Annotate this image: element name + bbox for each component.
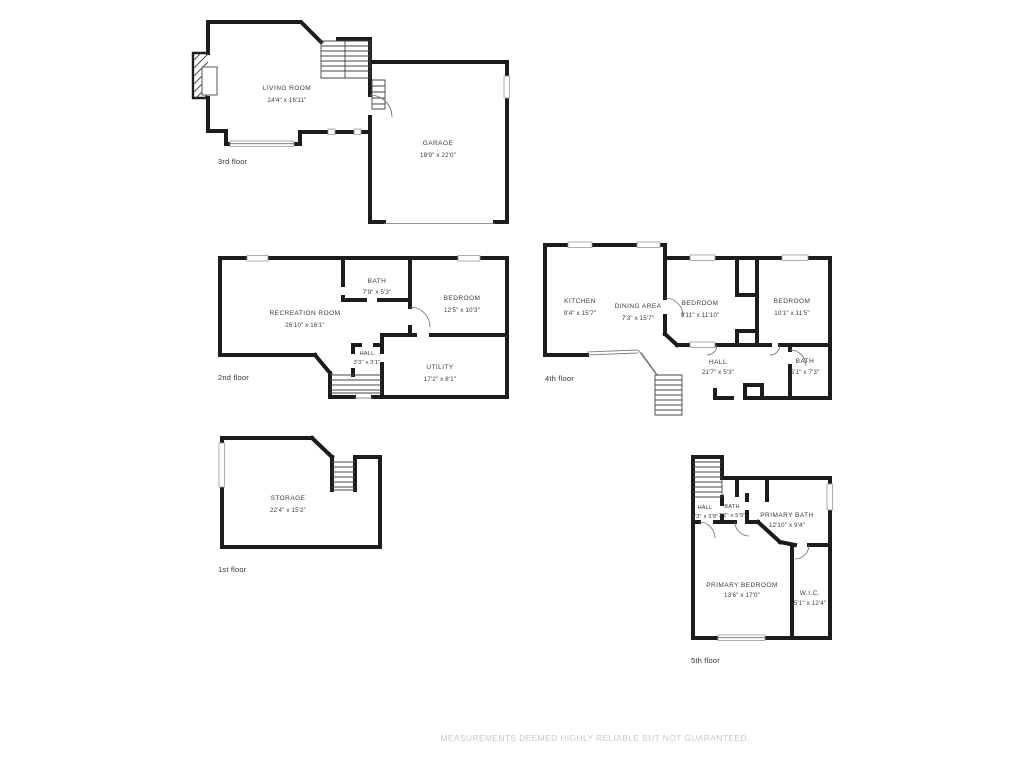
stairs [655, 375, 682, 415]
room-dims-bath: 7'9" x 5'3" [363, 289, 392, 296]
window [219, 443, 225, 487]
room-name-bedroom-left: BEDROOM [682, 300, 719, 307]
fireplace [193, 53, 217, 98]
room-dims-bath: 5'1" x 7'3" [791, 369, 820, 376]
stair-rail [587, 350, 658, 376]
room-name-kitchen: KITCHEN [564, 298, 596, 305]
stairs [330, 375, 382, 393]
garage-steps [372, 80, 385, 109]
window [690, 342, 715, 348]
window [568, 242, 592, 248]
room-name-hall: HALL [697, 505, 712, 511]
floorplan-4th-floor: KITCHEN 9'4" x 15'7" DINING AREA 7'3" x … [540, 238, 840, 418]
floor-label-5th: 5th floor [691, 656, 720, 665]
room-dims-bedroom-left: 9'11" x 11'10" [681, 312, 720, 319]
room-dims-hall: 21'7" x 5'3" [702, 369, 734, 376]
room-dims-kitchen: 9'4" x 15'7" [564, 310, 596, 317]
room-name-garage: GARAGE [423, 140, 454, 147]
room-dims-living-room: 24'4" x 16'11" [267, 97, 306, 104]
window [827, 484, 833, 510]
window [458, 256, 480, 262]
room-name-recreation-room: RECREATION ROOM [270, 310, 341, 317]
room-name-bedroom-right: BEDROOM [774, 298, 811, 305]
room-dims-hall: 9'3" x 3'8" [691, 514, 718, 520]
floorplan-5th-floor: HALL 9'3" x 3'8" BATH 7'2" x 5'9" PRIMAR… [685, 450, 850, 655]
stairs [332, 462, 355, 490]
floorplan-page: LIVING ROOM 24'4" x 16'11" GARAGE 18'9" … [0, 0, 1024, 768]
room-name-wic: W.I.C. [800, 590, 820, 597]
window [247, 256, 268, 262]
room-dims-storage: 22'4" x 15'2" [270, 507, 306, 514]
window [637, 242, 660, 248]
room-name-primary-bedroom: PRIMARY BEDROOM [706, 582, 778, 589]
window [328, 129, 335, 135]
floor-label-3rd: 3rd floor [218, 157, 247, 166]
walls [222, 438, 380, 547]
room-name-bath: BATH [724, 504, 740, 510]
room-dims-hall: 3'3" x 3'1" [353, 360, 380, 366]
room-name-bedroom: BEDROOM [444, 295, 481, 302]
room-dims-wic: 5'1" x 12'4" [794, 600, 826, 607]
measurements-disclaimer: MEASUREMENTS DEEMED HIGHLY RELIABLE BUT … [430, 733, 760, 743]
room-name-bath: BATH [368, 278, 387, 285]
walls [545, 245, 830, 398]
room-dims-bedroom: 12'5" x 10'3" [444, 307, 480, 314]
floorplan-3rd-floor: LIVING ROOM 24'4" x 16'11" GARAGE 18'9" … [188, 12, 520, 232]
window [504, 76, 510, 98]
stairs [693, 462, 722, 497]
window [354, 129, 361, 135]
room-dims-dining-area: 7'3" x 15'7" [622, 315, 654, 322]
room-dims-bedroom-right: 10'1" x 11'5" [774, 310, 809, 317]
window [782, 255, 808, 261]
floor-label-2nd: 2nd floor [218, 373, 249, 382]
walls [693, 457, 830, 638]
room-name-dining-area: DINING AREA [615, 303, 662, 310]
room-dims-garage: 18'9" x 22'0" [420, 152, 456, 159]
window [690, 255, 715, 261]
walls [220, 258, 507, 397]
door-arc [410, 307, 430, 327]
room-dims-primary-bedroom: 13'6" x 17'0" [724, 592, 760, 599]
room-name-storage: STORAGE [271, 495, 306, 502]
stairs [321, 41, 370, 78]
floorplan-1st-floor: STORAGE 22'4" x 15'2" [215, 432, 430, 562]
room-name-primary-bath: PRIMARY BATH [760, 512, 813, 519]
room-name-hall: HALL [709, 359, 727, 366]
room-dims-primary-bath: 12'10" x 9'4" [769, 522, 805, 529]
floor-label-4th: 4th floor [545, 374, 574, 383]
room-name-hall: HALL [359, 351, 374, 357]
floorplan-2nd-floor: RECREATION ROOM 26'10" x 16'1" BATH 7'9"… [215, 252, 513, 404]
room-dims-utility: 17'2" x 8'1" [424, 376, 456, 383]
room-dims-bath: 7'2" x 5'9" [718, 513, 745, 519]
room-dims-recreation-room: 26'10" x 16'1" [285, 322, 324, 329]
room-name-bath: BATH [796, 358, 815, 365]
floor-label-1st: 1st floor [218, 565, 246, 574]
room-name-utility: UTILITY [426, 364, 454, 371]
room-name-living-room: LIVING ROOM [263, 85, 311, 92]
walls [208, 22, 507, 222]
